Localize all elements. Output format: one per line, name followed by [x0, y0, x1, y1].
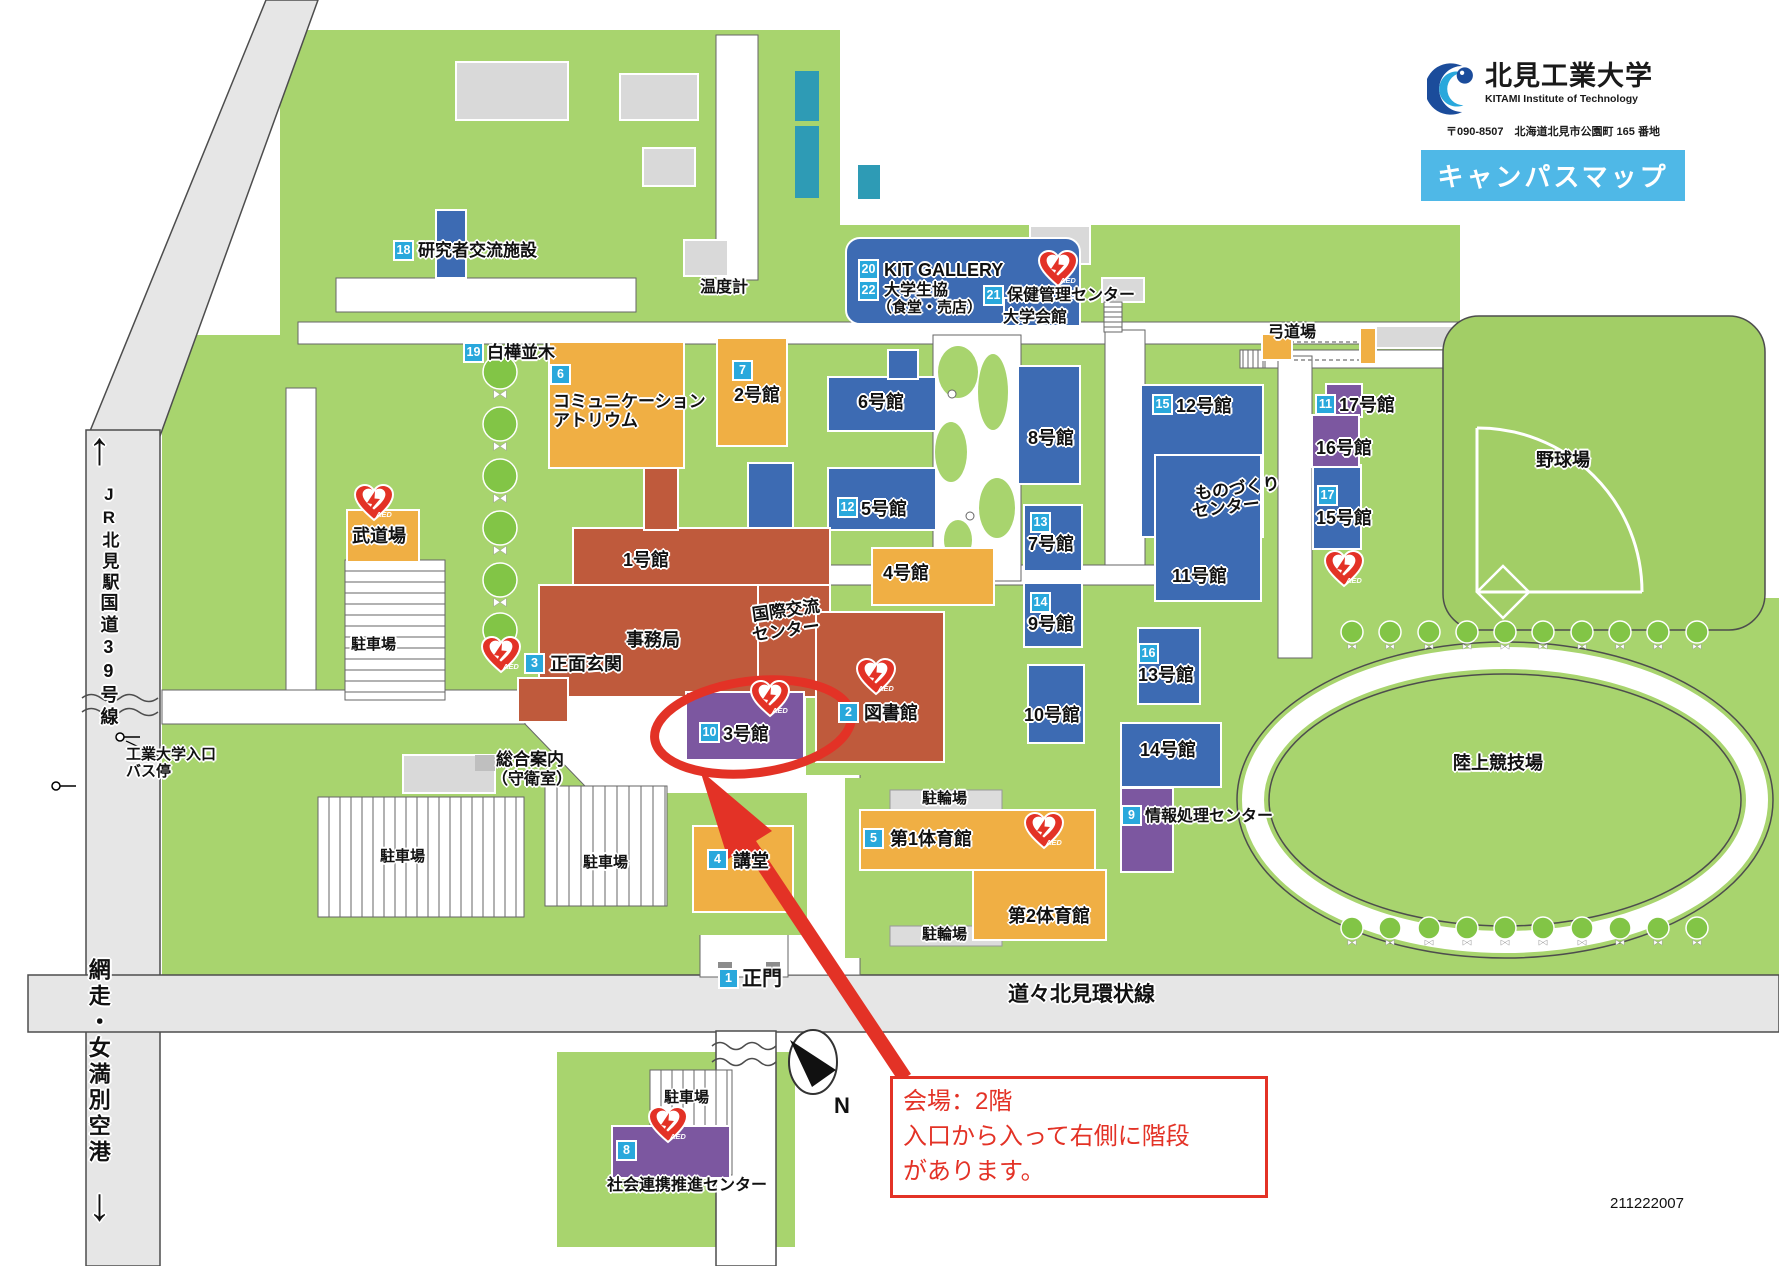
green-blob-3	[978, 354, 1008, 430]
building-genkan-stub	[518, 678, 568, 722]
building-16gokan	[1312, 415, 1359, 467]
tree-icon	[1609, 917, 1631, 939]
venue-annotation-line2: 入口から入って右側に階段	[903, 1120, 1255, 1155]
building-8gokan	[1018, 366, 1080, 484]
tree-icon	[1532, 621, 1554, 643]
tree-icon	[1571, 917, 1593, 939]
building-kyudojo	[1262, 334, 1292, 360]
building-6gokan	[828, 377, 936, 431]
building-6gokan-tower	[888, 350, 918, 379]
venue-annotation-line3: があります。	[903, 1155, 1255, 1190]
green-blob-2	[935, 422, 967, 482]
tree-icon	[1341, 917, 1363, 939]
tree-icon	[483, 511, 517, 545]
svg-text:AED: AED	[375, 510, 392, 519]
gray-building	[456, 62, 568, 120]
building-4gokan	[872, 548, 994, 605]
gray-building	[620, 74, 698, 120]
bus-stop-icon	[52, 782, 60, 790]
building-gym2	[973, 870, 1106, 940]
path-top-horizontal	[336, 278, 636, 312]
venue-annotation-line1: 会場：2階	[903, 1085, 1255, 1120]
tree-icon	[1341, 621, 1363, 643]
building-9gokan	[1024, 583, 1082, 647]
building-1gokan-main	[573, 528, 830, 585]
guard-house-annex	[475, 755, 495, 771]
building-kyudojo-annex	[1360, 328, 1376, 364]
tree-icon	[1647, 917, 1669, 939]
tree-icon	[1494, 621, 1516, 643]
green-blob-4	[979, 478, 1015, 538]
svg-text:AED: AED	[771, 706, 788, 715]
building-1gokan-arm	[644, 468, 678, 530]
svg-text:AED: AED	[1045, 838, 1062, 847]
university-address: 〒090-8507 北海道北見市公園町 165 番地	[1427, 123, 1679, 139]
gray-building	[643, 148, 695, 186]
building-10gokan	[1028, 665, 1084, 743]
teal-building	[858, 165, 880, 199]
tree-icon	[1647, 621, 1669, 643]
building-daigaku-kaikan	[1004, 298, 1080, 326]
building-11gokan	[1155, 455, 1261, 601]
tree-icon	[1609, 621, 1631, 643]
university-name: 北見工業大学	[1485, 62, 1653, 92]
building-kenkyusha-koryu	[436, 210, 466, 278]
building-5gokan-annex	[748, 463, 793, 529]
gate-post-icon	[718, 962, 732, 971]
bus-stop-icon	[116, 733, 124, 741]
teal-building	[795, 126, 819, 198]
building-3gokan	[686, 692, 804, 760]
thermometer-building	[684, 240, 728, 276]
university-logo-block: 北見工業大学 KITAMI Institute of Technology 〒0…	[1421, 56, 1685, 201]
campus-map-page: AEDAEDAEDAEDAEDAEDAEDAED 181967202221121…	[0, 0, 1779, 1266]
tree-icon	[1532, 917, 1554, 939]
baseball-field	[1443, 316, 1765, 630]
bicycle-shed-north	[890, 790, 1002, 810]
road-west-vertical	[86, 430, 160, 1266]
kit-swoosh-logo-icon	[1427, 62, 1481, 116]
tree-icon	[483, 407, 517, 441]
tree-icon	[1418, 621, 1440, 643]
building-17gokan	[1326, 384, 1362, 417]
university-name-en: KITAMI Institute of Technology	[1485, 93, 1653, 105]
green-pocket-1	[578, 472, 640, 530]
tree-icon	[483, 355, 517, 389]
gray-building	[1102, 278, 1144, 302]
logo-box: 北見工業大学 KITAMI Institute of Technology 〒0…	[1421, 56, 1685, 146]
path-vertical-east	[1278, 356, 1312, 658]
tree-icon	[1494, 917, 1516, 939]
tree-icon	[1686, 917, 1708, 939]
lamp-icon	[948, 390, 956, 398]
tree-icon	[1418, 917, 1440, 939]
building-7gokan	[1024, 505, 1082, 571]
building-15gokan	[1313, 465, 1361, 549]
tree-icon	[1686, 621, 1708, 643]
building-joho-shori	[1121, 788, 1173, 872]
path-west-vertical	[286, 388, 316, 712]
tree-icon	[483, 459, 517, 493]
lamp-icon	[966, 512, 974, 520]
tree-icon	[1571, 621, 1593, 643]
road-kanjo-line	[28, 975, 1779, 1032]
building-atrium	[549, 342, 684, 468]
svg-text:AED: AED	[877, 684, 894, 693]
green-pocket-2	[682, 472, 748, 528]
tree-icon	[1379, 917, 1401, 939]
parking-lot-west	[345, 560, 445, 700]
campus-map-title: キャンパスマップ	[1421, 150, 1685, 201]
svg-text:AED: AED	[1059, 276, 1076, 285]
venue-annotation-box: 会場：2階 入口から入って右側に階段 があります。	[890, 1076, 1268, 1198]
building-13gokan	[1138, 628, 1200, 704]
parking-lot-southwest	[318, 797, 524, 917]
building-14gokan	[1121, 723, 1221, 787]
gate-post-icon	[766, 962, 780, 971]
parking-lot-mid	[545, 786, 667, 906]
building-2gokan	[717, 338, 787, 446]
tree-icon	[1456, 621, 1478, 643]
tree-icon	[483, 563, 517, 597]
building-5gokan	[828, 468, 936, 530]
svg-text:AED: AED	[502, 662, 519, 671]
svg-text:AED: AED	[669, 1132, 686, 1141]
path-vertical-center-east	[1105, 330, 1145, 582]
teal-building	[795, 71, 819, 121]
tree-icon	[1456, 917, 1478, 939]
svg-text:AED: AED	[1345, 576, 1362, 585]
tree-icon	[1379, 621, 1401, 643]
green-blob-1	[938, 346, 978, 398]
